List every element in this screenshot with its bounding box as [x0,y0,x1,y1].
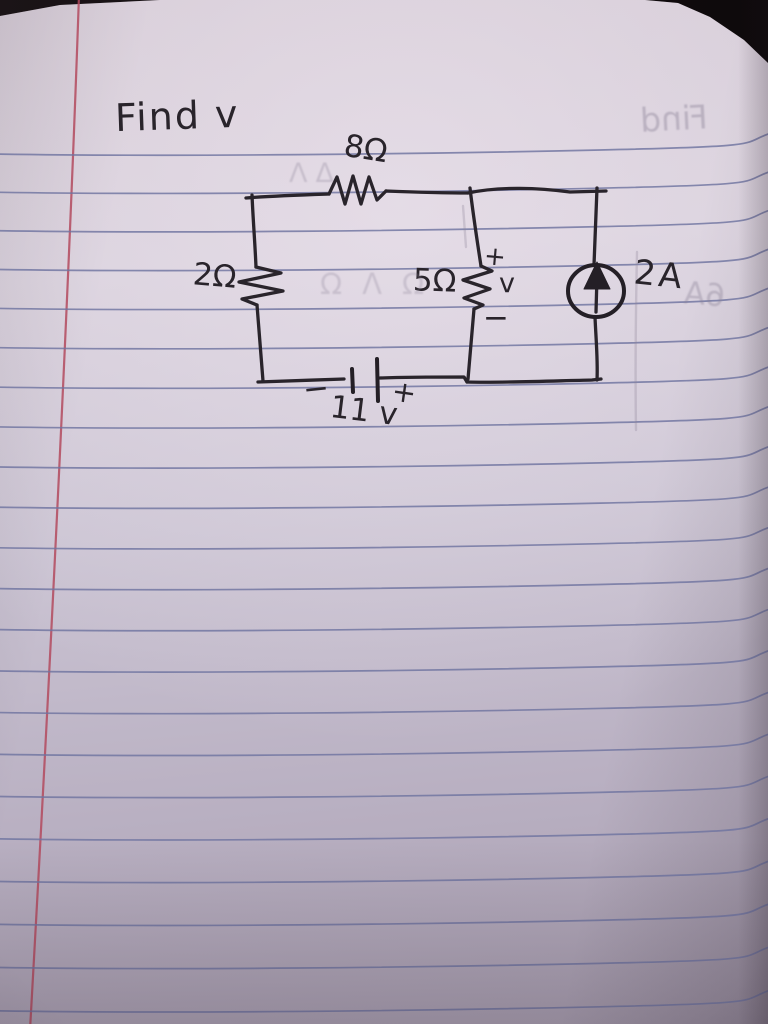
unknown-voltage-label: v [499,270,515,297]
resistor-8ohm-symbol [329,176,386,204]
voltage-minus-sign: − [483,303,509,334]
current-source-label: 2A [632,255,686,294]
ghost-squiggle-top: ΔΛ [281,160,334,187]
ghost-squiggle-mid: ΩΛΩ [300,270,424,299]
ghost-current-text: 6A [683,279,726,313]
voltage-plus-sign: + [483,243,507,271]
ghost-smudge [463,206,466,247]
notebook-photo: Find v 8Ω 2Ω 5Ω + v − 2A − 11 v + Find 6… [0,0,768,1024]
page-title: Find v [114,95,240,137]
resistor-8ohm-label: 8Ω [342,131,390,168]
battery-value-label: 11 v [328,392,399,431]
battery-minus-sign: − [301,373,330,407]
current-source-icon [568,262,624,317]
resistor-2ohm-symbol [239,267,283,305]
battery-plus-sign: + [390,376,418,408]
resistor-2ohm-label: 2Ω [192,259,238,294]
ghost-title-text: Find [639,100,708,136]
